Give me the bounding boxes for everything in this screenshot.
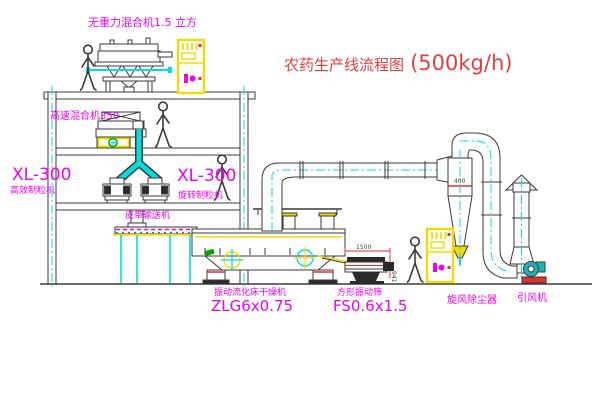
label-left-unit-model: XL-300 bbox=[12, 165, 71, 185]
label-dryer-model: ZLG6x0.75 bbox=[211, 297, 293, 315]
label-granulator-name: 旋转制粒机 bbox=[178, 189, 223, 201]
label-sieve-model: FS0.6x1.5 bbox=[333, 297, 407, 315]
person-figure-ground bbox=[408, 237, 424, 282]
label-high-speed-mixer: 高速混合机350 bbox=[50, 109, 119, 122]
belt-conveyor bbox=[113, 227, 199, 283]
label-granulator-model: XL-300 bbox=[177, 166, 236, 186]
floor-slab-mid bbox=[48, 148, 248, 155]
label-left-unit-name: 高效制粒机 bbox=[10, 184, 55, 196]
title-capacity: (500kg/h) bbox=[410, 51, 512, 75]
vibrating-sieve bbox=[345, 248, 394, 284]
floor-slab-top bbox=[44, 92, 255, 99]
page-title: 农药生产线流程图 (500kg/h) bbox=[284, 51, 512, 75]
sieve-height-dim: 941 bbox=[390, 271, 397, 283]
control-cabinet-cyclone bbox=[427, 229, 453, 282]
label-cyclone: 旋风除尘器 bbox=[447, 293, 497, 306]
drawing-canvas: 400 无重力混合机1.5 立方 高速混合机350 bbox=[0, 0, 600, 403]
sieve-length-dim: 1500 bbox=[356, 244, 371, 251]
gravity-mixer bbox=[86, 38, 172, 92]
title-text-cn: 农药生产线流程图 bbox=[284, 56, 404, 74]
label-gravity-mixer: 无重力混合机1.5 立方 bbox=[88, 15, 197, 29]
label-belt-conveyor: 皮带输送机 bbox=[125, 209, 170, 221]
person-figure-top bbox=[81, 45, 97, 90]
granulator-right bbox=[141, 178, 169, 203]
person-figure-floor2 bbox=[156, 102, 172, 147]
cad-flow-diagram: 400 无重力混合机1.5 立方 高速混合机350 bbox=[0, 0, 600, 403]
floor-slab-low bbox=[48, 203, 248, 210]
cyclone-separator: 400 bbox=[448, 133, 517, 278]
label-fan: 引风机 bbox=[517, 291, 547, 304]
induced-draft-fan bbox=[522, 262, 546, 284]
granulator-left bbox=[103, 178, 131, 203]
control-cabinet-top bbox=[178, 40, 204, 93]
